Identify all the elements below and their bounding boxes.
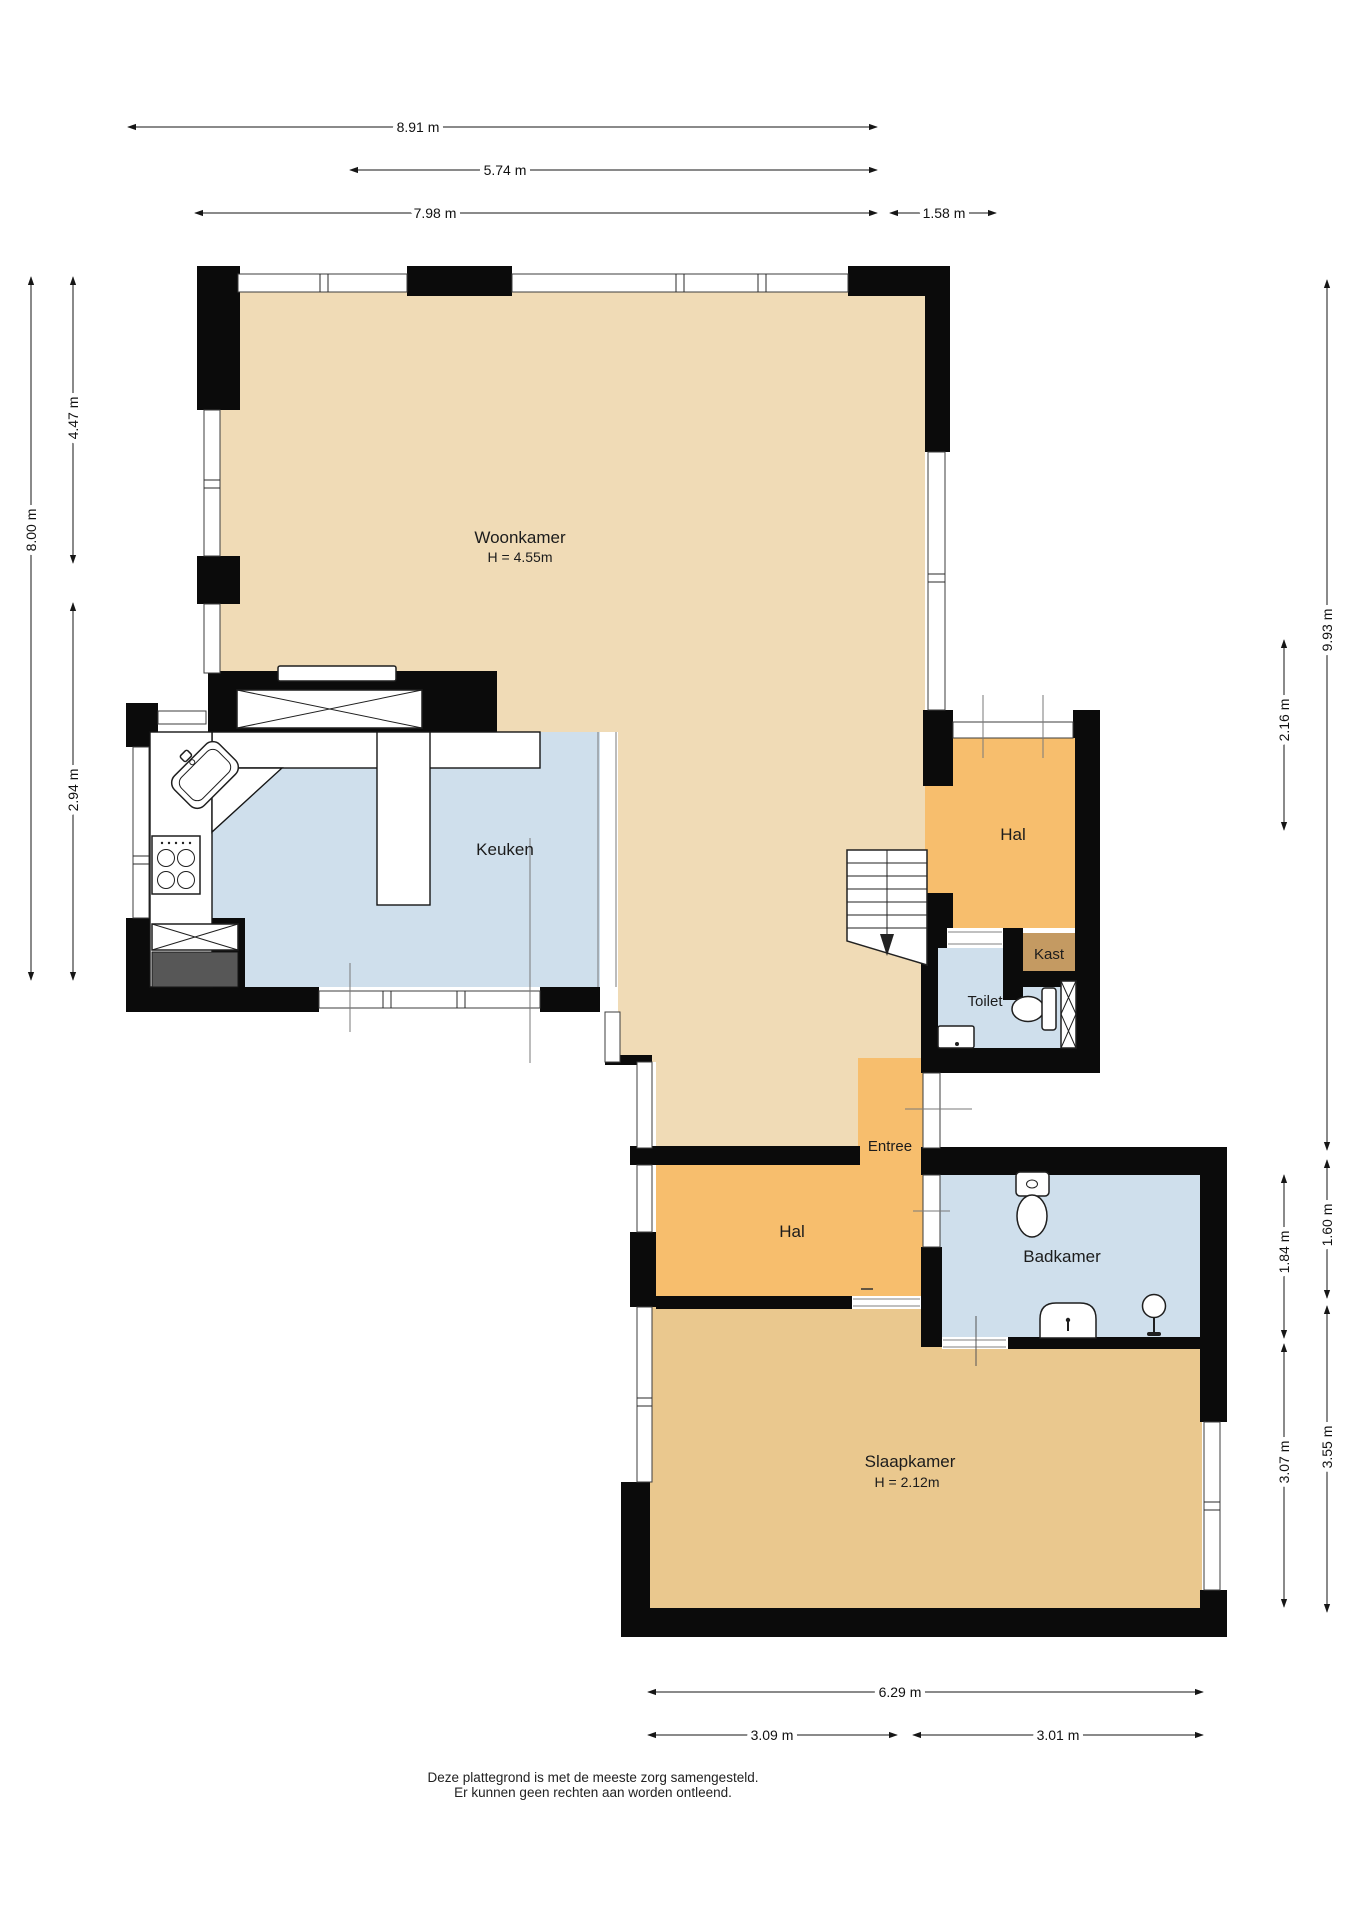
window <box>637 1062 652 1148</box>
wall-segment <box>621 1608 1227 1637</box>
wall-segment <box>245 987 319 1012</box>
appliance-dark <box>152 952 238 987</box>
wall-segment <box>921 1147 1227 1175</box>
wall-segment <box>540 987 600 1012</box>
wall-segment <box>1200 1147 1227 1422</box>
wall-segment <box>1073 710 1100 738</box>
wall-segment <box>1200 1590 1227 1637</box>
window <box>605 1012 620 1062</box>
toilet-cistern <box>1016 1172 1049 1196</box>
dimension-label: 1.60 m <box>1319 1204 1335 1247</box>
floor-plan-canvas: 8.91 m 5.74 m 7.98 m 1.58 m 8.00 m 4.47 … <box>0 0 1358 1920</box>
kitchen-counter <box>212 732 540 768</box>
chimney-duct-top <box>237 690 422 728</box>
room-label-badkamer: Badkamer <box>1023 1247 1101 1266</box>
window <box>319 991 540 1008</box>
window <box>953 722 1073 738</box>
radiator-body <box>1061 981 1076 1048</box>
room-sublabel-woonkamer: H = 4.55m <box>488 549 553 565</box>
room-label-hal-beneden: Hal <box>779 1222 805 1241</box>
dimension-label: 8.00 m <box>23 509 39 552</box>
window <box>238 274 407 292</box>
room-label-hal-boven: Hal <box>1000 825 1026 844</box>
dimension-label: 7.98 m <box>414 205 457 221</box>
wall-segment <box>1075 738 1100 1073</box>
footer-line-2: Er kunnen geen rechten aan worden ontlee… <box>454 1785 732 1800</box>
window <box>133 747 149 918</box>
room-label-toilet: Toilet <box>967 993 1003 1010</box>
window <box>637 1307 652 1482</box>
wall-segment <box>407 266 512 296</box>
window <box>204 604 220 673</box>
shower-head <box>1143 1295 1166 1318</box>
disclaimer: Deze plattegrond is met de meeste zorg s… <box>428 1770 759 1800</box>
wall-segment <box>630 1146 860 1165</box>
room-label-kast: Kast <box>1034 946 1065 963</box>
room-label-slaapkamer: Slaapkamer <box>865 1452 956 1471</box>
dimension-label: 3.55 m <box>1319 1426 1335 1469</box>
room-label-keuken: Keuken <box>476 840 534 859</box>
dimension-label: 3.07 m <box>1276 1441 1292 1484</box>
wall-segment <box>656 1296 852 1309</box>
mantel-shelf <box>278 666 396 681</box>
dimension-label: 6.29 m <box>879 1684 922 1700</box>
wall-segment <box>923 710 953 786</box>
shower-base <box>1147 1332 1161 1336</box>
window <box>928 452 945 710</box>
toilet-bowl <box>1012 997 1044 1022</box>
cooktop <box>152 836 200 894</box>
room-label-entree: Entree <box>868 1138 912 1155</box>
wall-segment <box>921 1247 942 1347</box>
window <box>158 711 206 724</box>
wall-segment <box>197 266 240 410</box>
door-opening <box>947 928 1003 948</box>
dimension-label: 2.94 m <box>65 769 81 812</box>
dimension-label: 9.93 m <box>1319 609 1335 652</box>
wall-segment <box>1008 1337 1202 1349</box>
dimension-label: 5.74 m <box>484 162 527 178</box>
window <box>923 1073 940 1148</box>
window <box>637 1165 652 1232</box>
door-opening <box>852 1296 921 1309</box>
dimension-label: 1.58 m <box>923 205 966 221</box>
wall-segment <box>630 1232 656 1307</box>
window <box>204 410 220 556</box>
toilet-cistern <box>1042 988 1056 1030</box>
wall-segment <box>925 893 953 929</box>
dimension-label: 8.91 m <box>397 119 440 135</box>
floorplan-page: 8.91 m 5.74 m 7.98 m 1.58 m 8.00 m 4.47 … <box>0 0 1358 1920</box>
wall-segment <box>925 266 950 452</box>
wall-segment <box>1003 928 1023 1000</box>
kitchen-island <box>377 732 430 905</box>
passage-woonkamer-hal <box>925 785 953 893</box>
window <box>1204 1422 1220 1590</box>
toilet-bowl <box>1017 1195 1047 1237</box>
dimension-label: 1.84 m <box>1276 1231 1292 1274</box>
wall-segment <box>921 1048 1100 1073</box>
dimension-label: 4.47 m <box>65 397 81 440</box>
window <box>512 274 848 292</box>
dimension-label: 3.01 m <box>1037 1727 1080 1743</box>
room-label-woonkamer: Woonkamer <box>474 528 566 547</box>
room-sublabel-slaapkamer: H = 2.12m <box>875 1474 940 1490</box>
footer-line-1: Deze plattegrond is met de meeste zorg s… <box>428 1770 759 1785</box>
dimension-label: 2.16 m <box>1276 699 1292 742</box>
faucet-icon <box>955 1042 959 1046</box>
faucet-icon <box>1066 1318 1070 1322</box>
radiator <box>1061 981 1076 1048</box>
kitchen-divider <box>598 732 616 987</box>
wall-segment <box>197 556 240 604</box>
dimension-label: 3.09 m <box>751 1727 794 1743</box>
chimney-duct-bottom <box>152 924 238 987</box>
